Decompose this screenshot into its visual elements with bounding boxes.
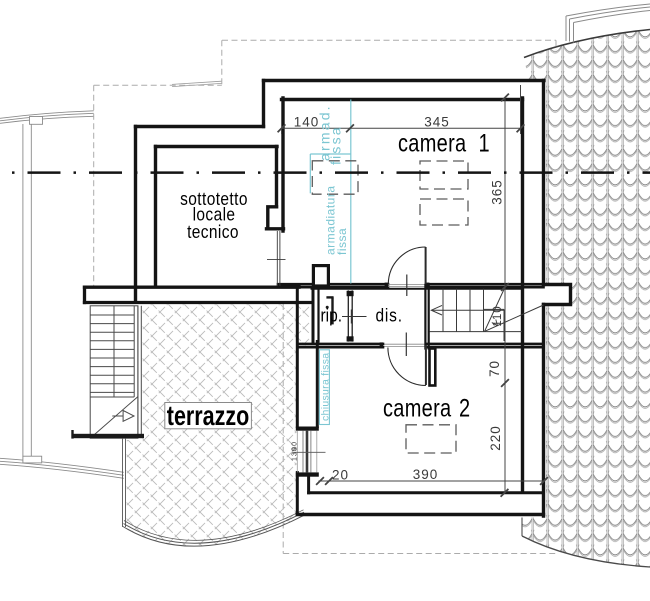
- svg-text:tecnico: tecnico: [187, 220, 239, 242]
- svg-text:140: 140: [294, 115, 320, 130]
- svg-text:70: 70: [487, 360, 502, 377]
- svg-text:camera: camera: [383, 394, 452, 422]
- svg-text:390: 390: [413, 467, 439, 482]
- svg-text:chiusura fissa: chiusura fissa: [320, 353, 332, 421]
- svg-text:terrazzo: terrazzo: [167, 400, 249, 431]
- svg-text:345: 345: [424, 115, 450, 130]
- svg-text:20: 20: [332, 468, 349, 483]
- svg-text:110: 110: [492, 305, 504, 326]
- svg-text:130: 130: [292, 446, 299, 461]
- svg-text:dis.: dis.: [376, 305, 403, 326]
- svg-text:camera: camera: [398, 129, 467, 157]
- svg-text:fissa: fissa: [328, 125, 344, 165]
- svg-text:220: 220: [488, 425, 503, 451]
- svg-text:fissa: fissa: [335, 228, 349, 255]
- svg-text:rip.: rip.: [321, 305, 343, 326]
- svg-text:365: 365: [490, 179, 505, 205]
- svg-text:1: 1: [479, 129, 490, 157]
- svg-text:2: 2: [459, 394, 470, 422]
